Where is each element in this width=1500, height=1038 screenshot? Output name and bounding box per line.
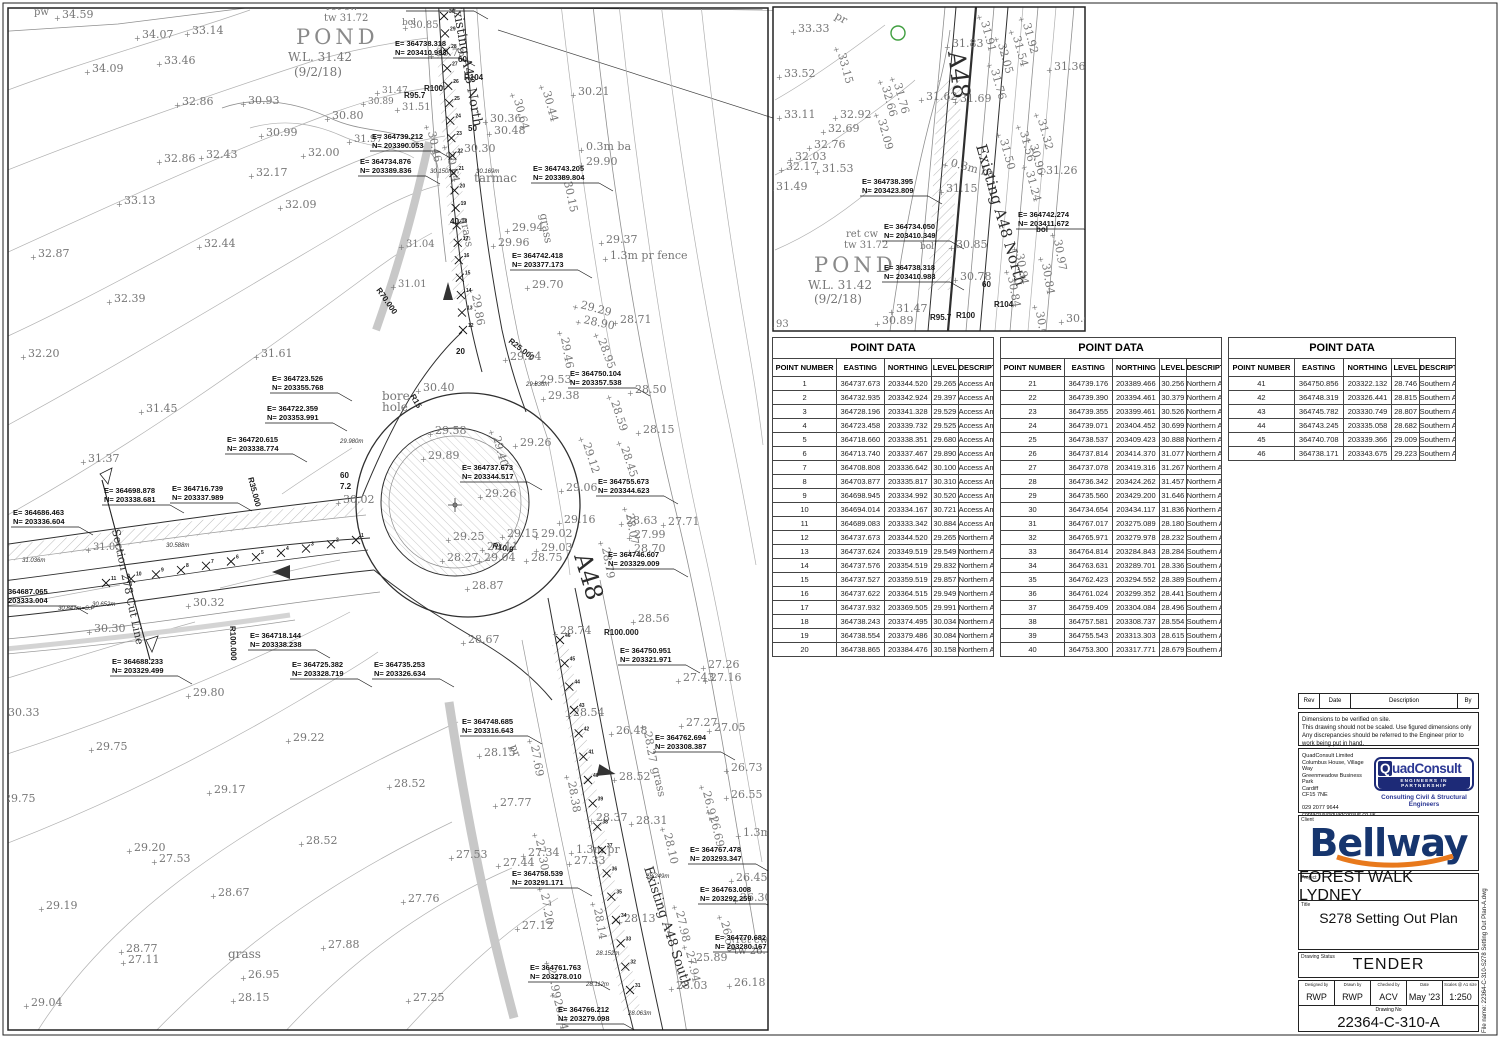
qc-logo-banner: ENGINEERS IN PARTNERSHIP (1378, 777, 1470, 789)
spot-level-cross: + (555, 329, 565, 337)
coordinate-callout: N= 203278.010 (530, 972, 582, 981)
point-data-row: 22364739.390203394.46130.379Northern Arm (1001, 391, 1222, 405)
map-label: 32.87 (38, 247, 70, 260)
spot-level-cross: + (574, 317, 582, 327)
spot-level-cross: + (30, 253, 37, 262)
point-number-label: 43 (579, 703, 585, 709)
coordinate-callout: E= 364743.205 (533, 164, 584, 173)
point-number-label: 17 (463, 236, 469, 242)
spot-level-cross: + (20, 353, 27, 362)
map-label: 33.11 (784, 108, 816, 121)
map-label: 34.59 (62, 8, 94, 21)
spot-level-cross: + (196, 243, 203, 252)
spot-level-cross: + (185, 602, 192, 611)
map-label: 30.02 (343, 493, 375, 506)
point-data-row: 9364698.945203334.99230.520Access Arm (773, 489, 994, 503)
spot-level-cross: + (156, 60, 163, 69)
map-label: 33.33 (798, 22, 830, 35)
callout-leader (528, 482, 542, 490)
map-label: 29.26 (485, 487, 517, 500)
spot-level-cross: + (618, 520, 625, 529)
map-label: pr (833, 9, 851, 27)
map-label: 29.38 (548, 389, 580, 402)
point-number-label: 25 (454, 96, 460, 102)
spot-level-cross: + (476, 752, 483, 761)
point-data-row: 36364761.024203299.35228.441Southern Arm (1001, 587, 1222, 601)
map-label: 29.980m (339, 439, 363, 445)
coordinate-callout: E= 364738.318 (884, 263, 935, 272)
map-label: 28.52 (394, 777, 426, 790)
coordinate-callout: E= 364758.539 (512, 869, 563, 878)
map-label: 26.55 (731, 788, 763, 801)
callout-leader (178, 676, 192, 684)
coordinate-callout: E= 364738.395 (862, 177, 913, 186)
map-label: ret cw (846, 229, 878, 240)
spot-level-cross: + (702, 677, 709, 686)
map-label: 31.26 (1046, 164, 1078, 177)
spot-level-cross: + (240, 974, 247, 983)
map-label: tw 31.72 (324, 13, 368, 24)
coordinate-callout: E= 364748.685 (462, 717, 513, 726)
spot-level-cross: + (726, 982, 733, 991)
spot-level-cross: + (80, 458, 87, 467)
callout-leader (474, 11, 488, 19)
drawn-by-cell: Drawn byRWP (1335, 981, 1371, 1005)
point-number-label: 1 (361, 533, 364, 539)
by-col-label: By (1458, 694, 1478, 708)
spot-level-cross: + (477, 493, 484, 502)
spot-level-cross: + (460, 639, 467, 648)
point-data-row: 34364763.631203289.70128.336Southern Arm (1001, 559, 1222, 573)
point-data-row: 23364739.355203399.46130.526Northern Arm (1001, 405, 1222, 419)
coordinate-callout: E= 364725.382 (292, 660, 343, 669)
point-number-label: 28 (451, 44, 457, 50)
callout-leader (338, 393, 352, 401)
map-label: W.L. 31.42 (808, 278, 872, 292)
spot-level-cross: + (174, 101, 181, 110)
spot-level-cross: + (588, 817, 595, 826)
map-label: 32.39 (114, 292, 146, 305)
spot-level-cross: + (814, 168, 821, 177)
spot-level-cross: + (768, 323, 775, 332)
map-label: 28.59 (608, 399, 630, 433)
map-label: 32.09 (875, 117, 896, 151)
client-panel: Client Bellway (1298, 815, 1479, 871)
spot-level-cross: + (185, 692, 192, 701)
coordinate-callout: N= 203328.719 (292, 669, 344, 678)
spot-level-cross: + (938, 188, 945, 197)
spot-level-cross: + (420, 455, 427, 464)
spot-level-cross: + (578, 146, 585, 155)
coordinate-callout: E= 364716.739 (172, 484, 223, 493)
cad-annotation: 20 (456, 347, 465, 356)
project-panel: Project FOREST WALK LYDNEY (1298, 873, 1479, 901)
spot-level-cross: + (768, 186, 775, 195)
coordinate-callout: N= 203377.173 (512, 260, 564, 269)
map-label: 26.45 (736, 871, 768, 884)
spot-level-cross: + (1058, 318, 1065, 327)
spot-level-cross: + (386, 783, 393, 792)
map-label: 29.75 (4, 792, 36, 805)
cad-annotation: R95.7 (404, 91, 426, 100)
setting-out-point-marker (459, 326, 467, 334)
point-data-row: 43364745.782203330.74928.807Southern Arm (1229, 405, 1456, 419)
map-label: 32.00 (308, 146, 340, 159)
spot-level-cross: + (540, 395, 547, 404)
map-label: 31.45 (146, 402, 178, 415)
spot-level-cross: + (627, 389, 634, 398)
map-label: 28.90 (582, 313, 616, 332)
scale-value: 1:250 (1449, 992, 1472, 1005)
map-label: 29.25 (453, 530, 485, 543)
point-data-row: 10364694.014203334.16730.721Access Arm (773, 503, 994, 517)
map-label: W.L. 31.42 (288, 50, 352, 64)
coordinate-callout: N= 203338.774 (227, 444, 279, 453)
map-label: 28.10 (661, 832, 681, 866)
point-data-table-1: POINT DATAPOINT NUMBEREASTINGNORTHINGLEV… (772, 337, 994, 657)
map-label: 33.46 (164, 54, 196, 67)
designed-by-value: RWP (1306, 992, 1327, 1005)
coordinate-callout: 203333.004 (8, 596, 48, 605)
spot-level-cross: + (360, 100, 367, 109)
point-number-label: 29 (450, 26, 456, 32)
point-data-row: 25364738.537203409.42330.888Northern Arm (1001, 433, 1222, 447)
date-value: May '23 (1409, 992, 1440, 1005)
spot-level-cross: + (630, 618, 637, 627)
spot-level-cross: + (346, 138, 353, 147)
point-data-row: 33364764.814203284.84328.284Southern Arm (1001, 545, 1222, 559)
map-label: 28.15 (643, 423, 675, 436)
spot-level-cross: + (558, 487, 565, 496)
coordinate-callout: E= 364755.673 (598, 477, 649, 486)
map-label: 32.92 (840, 108, 872, 121)
spot-level-cross: + (230, 997, 237, 1006)
map-label: 1.3m (743, 826, 771, 839)
map-label: 29.19 (46, 899, 78, 912)
point-number-label: 39 (598, 796, 604, 802)
point-data-row: 18364738.243203374.49530.034Northern Arm (773, 615, 994, 629)
spot-level-cross: + (253, 353, 260, 362)
coordinate-callout: N= 203410.983 (884, 272, 936, 281)
map-label: 27.76 (408, 892, 440, 905)
map-label: 30.48 (494, 124, 526, 137)
map-label: 31.01 (398, 279, 427, 290)
coordinate-callout: E= 364722.359 (267, 404, 318, 413)
spot-level-cross: + (944, 43, 951, 52)
map-label: 93 (776, 319, 789, 330)
coordinate-callout: N= 203308.387 (655, 742, 707, 751)
spot-level-cross: + (874, 320, 881, 329)
spot-level-cross: + (635, 429, 642, 438)
map-label: tw 31.72 (844, 240, 888, 251)
map-label: 28.52 (306, 834, 338, 847)
point-data-row: 37364759.409203304.08428.496Southern Arm (1001, 601, 1222, 615)
point-number-label: 12 (468, 323, 474, 329)
cad-annotation: 60 (982, 280, 991, 289)
map-label: 26.73 (731, 761, 763, 774)
map-label: 31.69 (960, 92, 992, 105)
address-line: Greenmeadow Business Park (1302, 773, 1374, 786)
coordinate-callout: E= 364735.253 (374, 660, 425, 669)
spot-level-cross: + (0, 798, 3, 807)
map-label: (9/2/18) (294, 65, 342, 79)
point-data-row: 19364738.554203379.48630.084Northern Arm (773, 629, 994, 643)
coordinate-callout: N= 203292.259 (700, 894, 752, 903)
map-label: 27.26 (708, 658, 740, 671)
map-label: 31.51 (402, 102, 431, 113)
map-label: 33.13 (124, 194, 156, 207)
map-label: 31.05 (93, 542, 122, 553)
spot-level-cross: + (210, 892, 217, 901)
spot-level-cross: + (570, 91, 577, 100)
setting-out-point-marker (440, 12, 448, 20)
point-data-row: 28364736.342203424.26231.457Northern Arm (1001, 475, 1222, 489)
map-label: 31.036m (22, 558, 45, 564)
spot-level-cross: + (23, 1002, 30, 1011)
map-label: 30.85 (410, 20, 439, 31)
spot-level-cross: + (1048, 231, 1058, 239)
spot-level-cross: + (688, 957, 695, 966)
map-label: 28.56 (638, 612, 670, 625)
spot-level-cross: + (439, 557, 446, 566)
spot-level-cross: + (1030, 303, 1040, 311)
note-line: Dimensions to be verified on site. (1302, 716, 1475, 724)
map-label: 31.15 (946, 182, 978, 195)
map-label: 28.31 (636, 814, 668, 827)
staff-and-number-panel: Designed byRWP Drawn byRWP Checked byACV… (1298, 980, 1479, 1032)
spot-level-cross: + (421, 123, 431, 131)
coordinate-callout: N= 203344.517 (462, 472, 514, 481)
spot-level-cross: + (524, 284, 531, 293)
point-number-label: 24 (455, 114, 461, 120)
coordinate-callout: N= 203353.991 (267, 413, 319, 422)
coordinate-callout: N= 203410.349 (884, 231, 936, 240)
setting-out-point-marker (152, 570, 160, 578)
coordinate-callout: N= 203329.009 (608, 559, 660, 568)
spot-level-cross: + (285, 737, 292, 746)
point-data-row: 3364728.196203341.32829.529Access Arm (773, 405, 994, 419)
coordinate-callout: N= 203344.623 (598, 486, 650, 495)
coordinate-callout: E= 364688.233 (112, 657, 163, 666)
cad-annotation: R100.000 (604, 628, 639, 637)
callout-leader (293, 454, 307, 462)
coordinate-callout: E= 364738.318 (395, 39, 446, 48)
callout-leader (578, 888, 592, 896)
callout-leader (358, 679, 372, 687)
cad-annotation: R100.000 (228, 626, 238, 662)
callout-leader (599, 183, 613, 191)
spot-level-cross: + (571, 302, 580, 312)
map-label: 31.53 (822, 162, 854, 175)
rev-col-label: Rev (1299, 694, 1320, 708)
spot-level-cross: + (628, 820, 635, 829)
bellway-swoosh (1335, 854, 1455, 868)
coordinate-callout: N= 203390.053 (372, 141, 424, 150)
coordinate-callout: N= 203357.538 (570, 378, 622, 387)
qc-logo-word: uadConsult (1392, 761, 1461, 776)
coordinate-callout: E= 364770.682 (715, 933, 766, 942)
map-label: 25.89 (696, 951, 728, 964)
point-number-label: 41 (588, 750, 594, 756)
point-data-row: 41364750.856203322.13228.746Southern Arm (1229, 377, 1456, 391)
coordinate-callout: N= 203316.643 (462, 726, 514, 735)
setting-out-point-marker (302, 545, 310, 553)
spot-level-cross: + (612, 319, 619, 328)
spot-level-cross: + (620, 505, 630, 513)
spot-level-cross: + (335, 499, 342, 508)
coordinate-callout: N= 203338.238 (250, 640, 302, 649)
map-label: 32.43 (206, 148, 238, 161)
map-label: 32.20 (28, 347, 60, 360)
spot-level-cross: + (596, 539, 606, 547)
map-label: 32.86 (182, 95, 214, 108)
map-label: 29.06 (566, 481, 598, 494)
coordinate-callout: E= 364767.478 (690, 845, 741, 854)
point-data-row: 8364703.877203335.81730.310Access Arm (773, 475, 994, 489)
map-label: 33.52 (784, 67, 816, 80)
point-number-label: 27 (452, 61, 458, 67)
status-panel: Drawing Status TENDER (1298, 952, 1479, 978)
spot-level-cross: + (598, 239, 605, 248)
map-label: 31.50 (997, 137, 1018, 171)
designed-by-cell: Designed byRWP (1299, 981, 1335, 1005)
point-number-label: 46 (565, 633, 571, 639)
spot-level-cross: + (723, 767, 730, 776)
spot-level-cross: + (198, 154, 205, 163)
map-label: 28.063m (627, 1011, 651, 1017)
map-label: grass (649, 766, 669, 799)
map-label: POND (296, 25, 379, 49)
map-label: 30.44 (540, 89, 561, 123)
callout-leader (721, 752, 735, 760)
point-data-row: 44364743.245203335.05828.682Southern Arm (1229, 419, 1456, 433)
setting-out-point-marker (227, 558, 235, 566)
map-label: 31.37 (88, 452, 120, 465)
map-label: 28.71 (620, 313, 652, 326)
map-label: 30.93 (248, 94, 280, 107)
map-label: 28.67 (218, 886, 250, 899)
setting-out-point-marker (352, 536, 360, 544)
survey-station-marker (891, 26, 905, 40)
point-data-row: 32364765.971203279.97828.232Southern Arm (1001, 531, 1222, 545)
coordinate-callout: E= 364762.694 (655, 733, 707, 742)
cad-annotation: R100 (956, 311, 976, 320)
coordinate-callout: E= 364750.951 (620, 646, 671, 655)
table-header-row: POINT NUMBEREASTINGNORTHINGLEVELDESCRIPT… (1001, 359, 1222, 377)
coordinate-callout: E= 364766.212 (558, 1005, 609, 1014)
spot-level-cross: + (277, 204, 284, 213)
spot-level-cross: + (398, 243, 405, 252)
point-data-row: 40364753.300203317.77128.679Southern Arm (1001, 643, 1222, 657)
spot-level-cross: + (530, 831, 540, 839)
coordinate-callout: E= 364686.463 (13, 508, 64, 517)
map-label: 28.37 (596, 811, 628, 824)
map-label: 29.836m (525, 382, 549, 388)
map-label: 30.33 (8, 706, 40, 719)
point-data-row: 14364737.576203354.51929.832Northern Arm (773, 559, 994, 573)
coordinate-callout: E= 364734.050 (884, 222, 935, 231)
point-data-row: 6364713.740203337.46729.890Access Arm (773, 447, 994, 461)
map-label: 27.53 (456, 848, 488, 861)
project-name: FOREST WALK LYDNEY (1299, 874, 1478, 900)
map-label: 27.53 (159, 852, 191, 865)
map-label: 30.89 (882, 314, 914, 327)
spot-level-cross: + (400, 898, 407, 907)
spot-level-cross: + (514, 925, 521, 934)
point-data-row: 38364757.581203308.73728.554Southern Arm (1001, 615, 1222, 629)
spot-level-cross: + (723, 794, 730, 803)
status-label: Drawing Status (1301, 954, 1335, 960)
map-label: grass (228, 947, 261, 961)
point-number-label: 14 (466, 288, 472, 294)
spot-level-cross: + (611, 776, 618, 785)
map-label: 34.09 (92, 62, 124, 75)
spot-level-cross: + (588, 900, 598, 908)
point-data-row: 2364732.935203342.92429.397Access Arm (773, 391, 994, 405)
qc-logo-tagline: Consulting Civil & Structural Engineers (1374, 794, 1474, 808)
map-label: 29.89 (428, 449, 460, 462)
spot-level-cross: + (918, 96, 925, 105)
table-title: POINT DATA (1001, 338, 1222, 359)
coordinate-callout: E= 364718.144 (250, 631, 302, 640)
spot-level-cross: + (608, 730, 615, 739)
inset-leader-lines (498, 8, 773, 118)
map-label: 29.46 (558, 336, 576, 369)
title-panel: Title S278 Setting Out Plan (1298, 900, 1479, 950)
table-header-row: POINT NUMBEREASTINGNORTHINGLEVELDESCRIPT… (773, 359, 994, 377)
point-number-label: 3 (311, 542, 314, 548)
coordinate-callout: E= 364763.008 (700, 885, 751, 894)
callout-leader (781, 952, 795, 960)
setting-out-point-marker (177, 566, 185, 574)
spot-level-cross: + (54, 14, 61, 23)
site-plan-svg: pw+34.59+34.07+33.14+34.09+33.46PONDW.L.… (0, 0, 1500, 1038)
map-label: 29.02 (541, 527, 573, 540)
map-label: 30.847m=S.P (58, 606, 95, 612)
map-label: 32.17 (786, 160, 818, 173)
spot-level-cross: + (427, 430, 434, 439)
map-label: 26.95 (248, 968, 280, 981)
checked-by-value: ACV (1379, 992, 1398, 1005)
point-data-row: 42364748.319203326.44128.815Southern Arm (1229, 391, 1456, 405)
point-data-row: 21364739.176203389.46630.256Northern Arm (1001, 377, 1222, 391)
map-label: 28.54 (573, 706, 605, 719)
note-line: Any discrepancies should be referred to … (1302, 732, 1475, 748)
map-label: 0.3m ba (586, 140, 631, 153)
cad-annotation: 40 (450, 217, 459, 226)
map-label: 28.52 (619, 770, 651, 783)
point-number-label: 16 (464, 253, 470, 259)
map-label: 30.4 (1066, 312, 1091, 325)
map-label: 27.33 (574, 854, 606, 867)
spot-level-cross: + (706, 727, 713, 736)
callout-leader (170, 505, 184, 513)
map-label: 29.17 (214, 783, 246, 796)
spot-level-cross: + (948, 244, 955, 253)
spot-level-cross: + (138, 408, 145, 417)
point-number-label: 35 (616, 890, 622, 896)
spot-level-cross: + (120, 959, 127, 968)
map-label: 26.18 (734, 976, 766, 989)
coordinate-callout: N= 203329.499 (112, 666, 164, 675)
table-header-row: POINT NUMBEREASTINGNORTHINGLEVELDESCRIPT… (1229, 359, 1456, 377)
map-label: 32.17 (256, 166, 288, 179)
coordinate-callout: E= 364739.212 (372, 132, 423, 141)
map-label: 30.169m (476, 169, 499, 175)
coordinate-callout: N= 203423.809 (862, 186, 914, 195)
map-label: 30.30 (464, 142, 496, 155)
spot-level-cross: + (394, 106, 401, 115)
